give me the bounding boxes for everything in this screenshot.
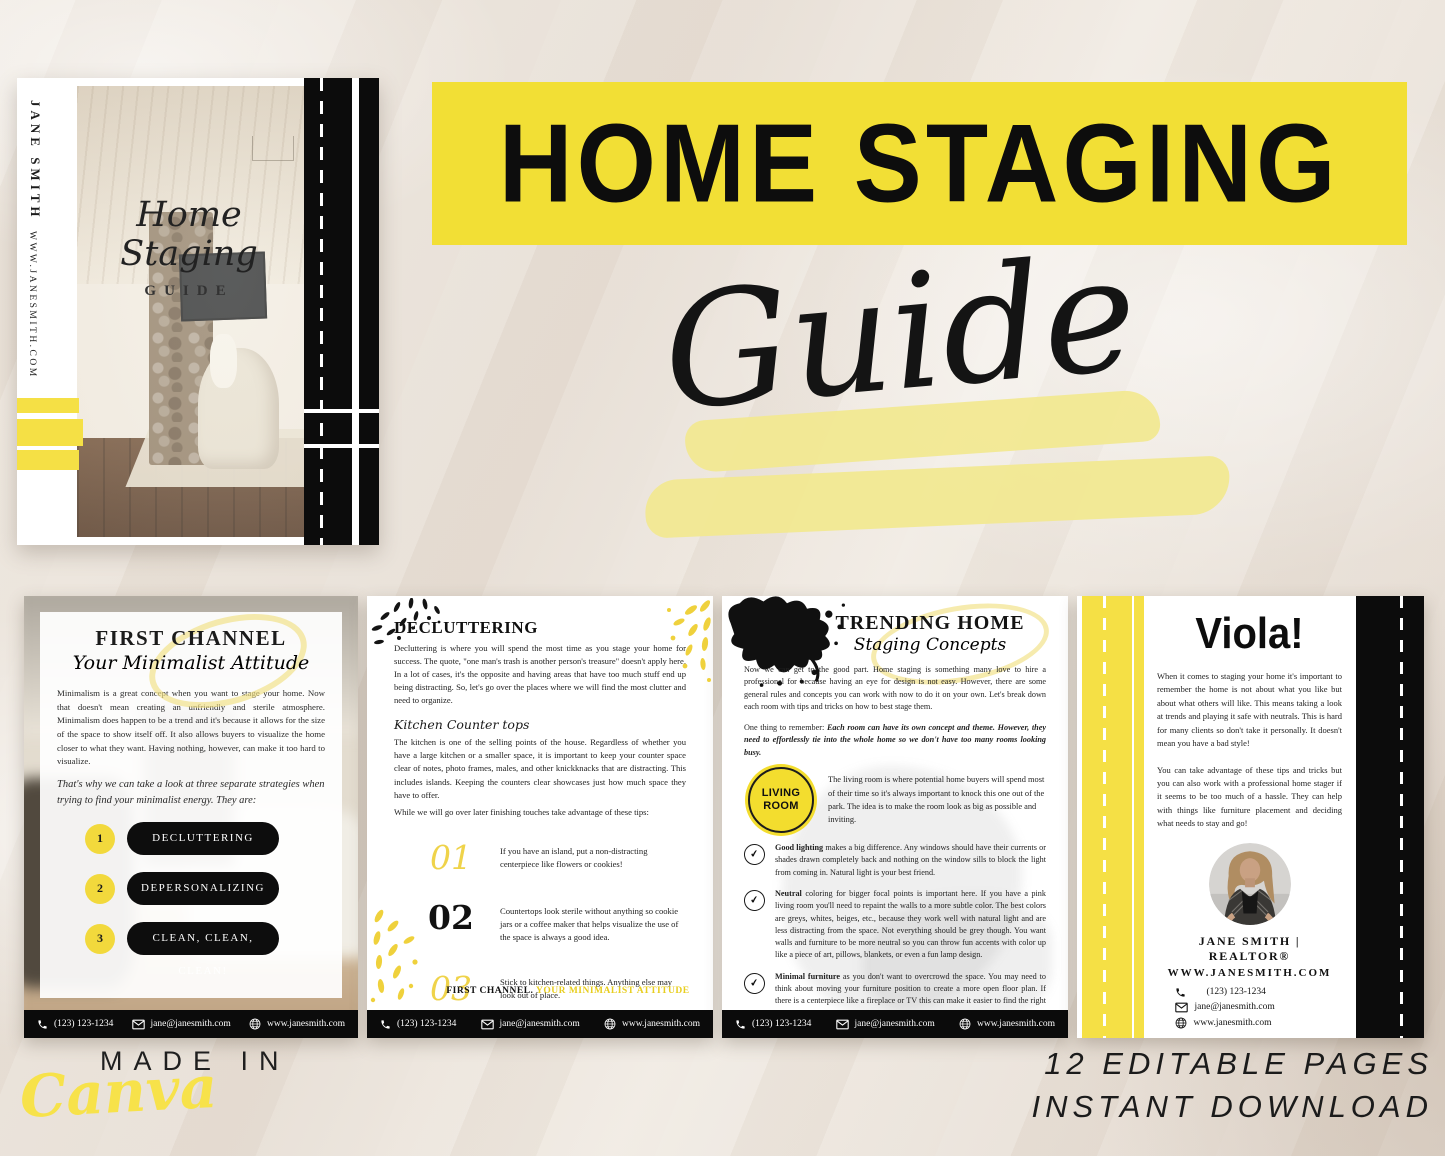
footer-email-text: jane@janesmith.com — [500, 1019, 580, 1029]
footer-email: jane@janesmith.com — [132, 1019, 231, 1030]
page2-subheading: Kitchen Counter tops — [394, 717, 686, 732]
cover-spine-text: JANE SMITH WWW.JANESMITH.COM — [27, 100, 43, 378]
hero-title: HOME STAGING — [499, 99, 1340, 228]
preview-page-decluttering: DECLUTTERING Decluttering is where you w… — [367, 596, 713, 1038]
footer-phone-text: (123) 123-1234 — [752, 1019, 811, 1029]
check-icon: ✔ — [742, 971, 766, 995]
footer-website: www.janesmith.com — [249, 1018, 345, 1030]
page-footer: (123) 123-1234 jane@janesmith.com www.ja… — [367, 1010, 713, 1038]
page-footer: (123) 123-1234 jane@janesmith.com www.ja… — [24, 1010, 358, 1038]
contact-email-text: jane@janesmith.com — [1195, 1002, 1275, 1012]
canva-logo: Canva — [18, 1053, 218, 1131]
checklist-lead: Good lighting — [775, 843, 823, 852]
checklist-text: Neutral coloring for bigger focal points… — [775, 888, 1046, 962]
footer-phone: (123) 123-1234 — [380, 1019, 456, 1030]
number-badge: 1 — [85, 824, 115, 854]
cover-spine: JANE SMITH WWW.JANESMITH.COM — [17, 78, 77, 545]
footer-website: www.janesmith.com — [604, 1018, 700, 1030]
phone-icon — [1175, 987, 1186, 998]
number-badge: 3 — [85, 924, 115, 954]
footer-website: www.janesmith.com — [959, 1018, 1055, 1030]
white-cross-line — [304, 409, 379, 413]
cover-yellow-stripe — [17, 419, 83, 446]
page3-header: TRENDING HOME Staging Concepts — [814, 612, 1046, 655]
footer-phone: (123) 123-1234 — [37, 1019, 113, 1030]
black-stripe — [304, 78, 352, 545]
dashed-line — [1400, 596, 1403, 1038]
page1-subtitle: Your Minimalist Attitude — [57, 652, 325, 674]
promo-pages: 12 EDITABLE PAGES — [1032, 1042, 1434, 1085]
reminder-lead: One thing to remember: — [744, 723, 827, 732]
page-footer: (123) 123-1234 jane@janesmith.com www.ja… — [722, 1010, 1068, 1038]
checklist-item: ✔ Good lighting makes a big difference. … — [744, 842, 1046, 879]
contact-phone: (123) 123-1234 — [1175, 987, 1325, 998]
page3-title: TRENDING HOME — [814, 612, 1046, 635]
promo-download: INSTANT DOWNLOAD — [1032, 1085, 1434, 1128]
black-side-band — [1356, 596, 1424, 1038]
list-item: 3 CLEAN, CLEAN, CLEAN! — [85, 922, 325, 955]
realtor-website: WWW.JANESMITH.COM — [1157, 967, 1342, 979]
check-icon: ✔ — [742, 842, 766, 866]
list-item: 2 DEPERSONALIZING — [85, 872, 325, 905]
page1-strategy-list: 1 DECLUTTERING 2 DEPERSONALIZING 3 CLEAN… — [57, 822, 325, 955]
page4-content: Viola! When it comes to staging your hom… — [1157, 596, 1342, 1038]
white-line — [1132, 596, 1134, 1038]
footer-website-text: www.janesmith.com — [622, 1019, 700, 1029]
footer-email: jane@janesmith.com — [481, 1019, 580, 1030]
hero-subtitle-script: Guide — [634, 233, 1166, 436]
contact-website: www.janesmith.com — [1175, 1017, 1325, 1029]
footer-email: jane@janesmith.com — [836, 1019, 935, 1030]
preview-page-viola: Viola! When it comes to staging your hom… — [1077, 596, 1424, 1038]
footer-phone-text: (123) 123-1234 — [54, 1019, 113, 1029]
cover-black-band — [304, 78, 379, 545]
tip-text: Countertops look sterile without anythin… — [500, 901, 680, 945]
preview-page-trending-concepts: TRENDING HOME Staging Concepts Now we ca… — [722, 596, 1068, 1038]
cover-author: JANE SMITH — [27, 100, 43, 221]
promo-text: 12 EDITABLE PAGES INSTANT DOWNLOAD — [1032, 1042, 1434, 1129]
globe-icon — [249, 1018, 261, 1030]
page3-subtitle: Staging Concepts — [814, 635, 1046, 655]
page3-paragraph: Now we can get to the good part. Home st… — [744, 664, 1046, 713]
tip-item: 01 If you have an island, put a non-dist… — [422, 841, 680, 874]
dashed-line — [1103, 596, 1106, 1038]
mail-icon — [132, 1019, 145, 1030]
cover-mockup: Home Staging GUIDE JANE SMITH WWW.JANESM… — [17, 78, 379, 545]
yellow-side-band — [1082, 596, 1144, 1038]
living-room-badge: LIVING ROOM — [748, 767, 814, 833]
cover-title: Home Staging GUIDE — [77, 196, 301, 300]
contact-list: (123) 123-1234 jane@janesmith.com www.ja… — [1175, 987, 1325, 1029]
phone-icon — [37, 1019, 48, 1030]
strategy-pill: DECLUTTERING — [127, 822, 279, 855]
phone-icon — [735, 1019, 746, 1030]
checklist-item: ✔ Neutral coloring for bigger focal poin… — [744, 888, 1046, 962]
contact-email: jane@janesmith.com — [1175, 1002, 1325, 1013]
cover-website: WWW.JANESMITH.COM — [27, 231, 43, 379]
page2-chapter-note: FIRST CHANNEL. YOUR MINIMALIST ATTITUDE — [437, 986, 699, 996]
globe-icon — [959, 1018, 971, 1030]
living-room-intro: The living room is where potential home … — [828, 767, 1046, 827]
living-room-section: LIVING ROOM The living room is where pot… — [744, 767, 1046, 833]
checklist-lead: Neutral — [775, 889, 802, 898]
contact-phone-text: (123) 123-1234 — [1207, 987, 1266, 997]
confetti-decoration — [367, 900, 467, 1010]
number-badge: 2 — [85, 874, 115, 904]
page3-reminder: One thing to remember: Each room can hav… — [744, 722, 1046, 759]
contact-website-text: www.janesmith.com — [1194, 1018, 1272, 1028]
page4-paragraph: You can take advantage of these tips and… — [1157, 764, 1342, 831]
page1-header: FIRST CHANNEL Your Minimalist Attitude — [57, 626, 325, 674]
check-icon: ✔ — [742, 888, 766, 912]
white-cross-line — [304, 444, 379, 448]
footer-phone-text: (123) 123-1234 — [397, 1019, 456, 1029]
phone-icon — [380, 1019, 391, 1030]
globe-icon — [604, 1018, 616, 1030]
page1-emphasis: That's why we can take a look at three s… — [57, 777, 325, 809]
tip-text: If you have an island, put a non-distrac… — [500, 841, 680, 872]
page4-paragraph: When it comes to staging your home it's … — [1157, 670, 1342, 751]
page2-paragraph: The kitchen is one of the selling points… — [394, 736, 686, 801]
product-listing-image: Home Staging GUIDE JANE SMITH WWW.JANESM… — [0, 0, 1445, 1156]
black-stripe — [359, 78, 379, 545]
mail-icon — [481, 1019, 494, 1030]
page1-title: FIRST CHANNEL — [57, 626, 325, 651]
checklist-text: Good lighting makes a big difference. An… — [775, 842, 1046, 879]
confetti-decoration — [621, 596, 713, 688]
dashed-line — [320, 78, 323, 545]
footer-email-text: jane@janesmith.com — [151, 1019, 231, 1029]
cover-script-title: Home Staging — [77, 196, 301, 273]
page1-content-card: FIRST CHANNEL Your Minimalist Attitude M… — [40, 612, 342, 998]
list-item: 1 DECLUTTERING — [85, 822, 325, 855]
strategy-pill: DEPERSONALIZING — [127, 872, 279, 905]
footer-email-text: jane@janesmith.com — [855, 1019, 935, 1029]
badge-line: ROOM — [763, 800, 798, 813]
checklist-body: coloring for bigger focal points is impo… — [775, 889, 1046, 959]
preview-page-first-channel: FIRST CHANNEL Your Minimalist Attitude M… — [24, 596, 358, 1038]
footer-website-text: www.janesmith.com — [977, 1019, 1055, 1029]
footer-website-text: www.janesmith.com — [267, 1019, 345, 1029]
mail-icon — [1175, 1002, 1188, 1013]
tip-number: 01 — [422, 841, 480, 874]
confetti-decoration — [369, 598, 447, 650]
page2-paragraph: While we will go over later finishing to… — [394, 806, 686, 819]
mail-icon — [836, 1019, 849, 1030]
badge-line: LIVING — [762, 787, 800, 800]
chapter-note-yellow: YOUR MINIMALIST ATTITUDE — [536, 986, 690, 996]
footer-phone: (123) 123-1234 — [735, 1019, 811, 1030]
globe-icon — [1175, 1017, 1187, 1029]
hero-banner: HOME STAGING — [432, 82, 1407, 245]
page4-title: Viola! — [1157, 610, 1342, 659]
checklist-lead: Minimal furniture — [775, 972, 840, 981]
strategy-pill: CLEAN, CLEAN, CLEAN! — [127, 922, 279, 955]
cover-yellow-stripe — [17, 450, 79, 470]
cover-caps-title: GUIDE — [77, 283, 301, 300]
cover-yellow-stripe — [17, 398, 79, 413]
realtor-name: JANE SMITH | REALTOR® — [1157, 934, 1342, 964]
realtor-portrait — [1209, 843, 1291, 925]
